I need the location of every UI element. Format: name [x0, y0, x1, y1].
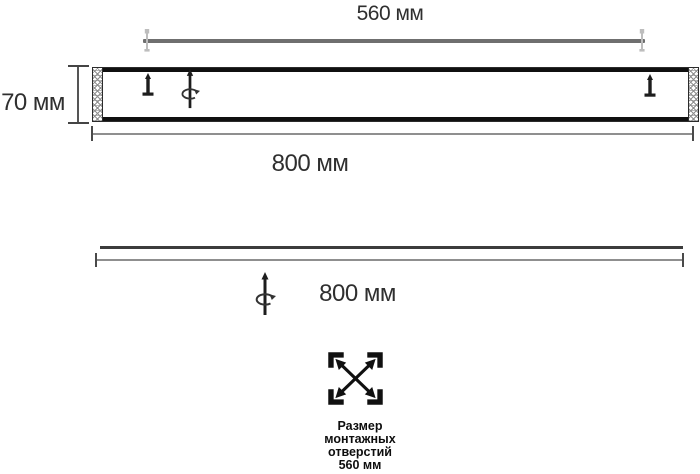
- mounting-bar: [143, 39, 645, 43]
- dim-label-mount-width: 560 мм: [320, 2, 460, 26]
- fixture-endcap-right: [688, 68, 698, 121]
- front-view-bar: [100, 246, 683, 249]
- mount-pin-icon: [142, 29, 152, 54]
- height-dim-tick-bottom: [68, 122, 89, 124]
- width-dim-line: [92, 133, 693, 135]
- fixture-endcap-left: [93, 68, 103, 121]
- expand-arrows-icon: [327, 352, 384, 405]
- screw-icon: [643, 74, 657, 100]
- front-dim-line: [96, 259, 684, 261]
- dimension-diagram: 560 мм: [0, 0, 700, 474]
- height-dim-line: [77, 66, 79, 124]
- front-dim-tick-left: [95, 253, 97, 267]
- rotate-axis-icon: [178, 69, 202, 109]
- dim-label-height: 70 мм: [0, 89, 66, 117]
- height-dim-tick-top: [68, 65, 89, 67]
- legend-caption: Размер монтажных отверстий 560 мм: [295, 420, 425, 472]
- dim-label-width-front: 800 мм: [315, 280, 400, 308]
- screw-icon: [141, 73, 155, 99]
- width-dim-tick-left: [91, 126, 93, 141]
- front-dim-tick-right: [682, 253, 684, 267]
- width-dim-tick-right: [692, 126, 694, 141]
- rotate-axis-icon: [253, 272, 277, 316]
- mount-pin-icon: [637, 29, 647, 54]
- dim-label-width-side: 800 мм: [265, 150, 355, 178]
- fixture-side-view: [92, 67, 699, 122]
- legend-caption-line: 560 мм: [295, 459, 425, 472]
